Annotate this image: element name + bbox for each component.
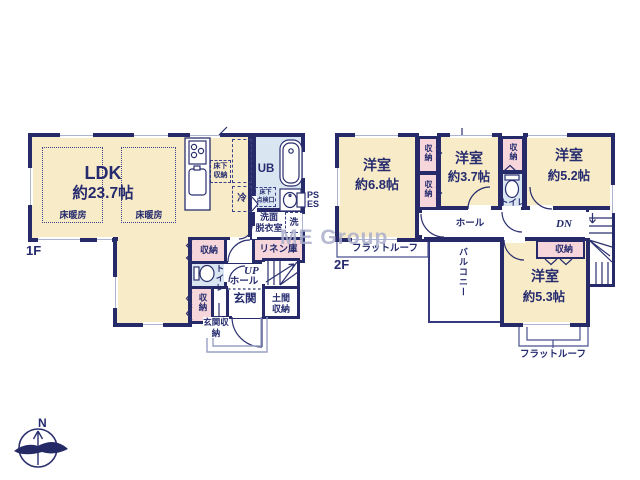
storage-side-label: 収納 (197, 293, 209, 312)
kitchen-counter-icon (185, 138, 210, 210)
fridge-label: 冷 (234, 193, 250, 205)
underfloor-storage-label: 床下収納 (211, 163, 230, 181)
dn-label: DN (556, 218, 572, 232)
hall-label-2f: ホール (446, 218, 494, 230)
floorplan-image: LDK 約23.7帖 床暖房 床暖房 床下収納 冷 UB 床下 点検口 PS E… (0, 0, 640, 480)
watermark-text: ME Group (280, 226, 388, 250)
ldk-size: 約23.7帖 (48, 184, 158, 203)
bedroom-5-3-size: 約5.3帖 (506, 290, 582, 306)
bedroom-6-8-size: 約6.8帖 (339, 177, 415, 193)
bathtub-icon (280, 140, 302, 186)
closet-b-label: 収納 (423, 180, 434, 198)
entrance-label: 玄関 (229, 292, 261, 306)
ldk-name: LDK (58, 162, 148, 185)
hall-label-1f: ホール (226, 276, 262, 288)
pipe-space-box (297, 193, 305, 207)
toilet-label-1f: トイレ (214, 264, 226, 293)
balcony-label: バルコニー (457, 247, 470, 297)
inspection-hatch-label: 床下 点検口 (256, 190, 275, 205)
floor-heating-label-left: 床暖房 (45, 210, 101, 221)
bedroom-5-3-name: 洋室 (516, 268, 574, 286)
stairs-down-icon (589, 213, 612, 284)
bedroom-6-8-name: 洋室 (348, 157, 406, 175)
closet-door-icons-1f (187, 240, 193, 320)
toilet-label-2f: トイレ (500, 197, 525, 208)
entrance-storage-label: 玄関収納 (203, 317, 229, 338)
floor-label-1f: 1F (26, 243, 41, 259)
unit-bath-label: UB (255, 162, 277, 176)
bedroom-3-7-name: 洋室 (443, 150, 495, 168)
flat-roof-bottom-label: フラットルーフ (516, 349, 590, 361)
toilet-icon-1f (194, 266, 214, 282)
storage-center-label: 収納 (193, 245, 225, 256)
toilet-icon-2f (505, 175, 519, 198)
es-label: ES (307, 199, 319, 210)
closet-c-label: 収納 (508, 143, 519, 161)
floor-heating-label-right: 床暖房 (124, 210, 174, 221)
bedroom-3-7-size: 約3.7帖 (436, 170, 502, 186)
closet-d-label: 収納 (548, 244, 580, 255)
bedroom-5-2-size: 約5.2帖 (532, 169, 606, 185)
wall-tick-marks (219, 127, 462, 135)
compass-north-label: N (38, 416, 47, 431)
doma-storage-label: 土間収納 (268, 293, 294, 316)
stairs-up-icon (266, 261, 298, 285)
floor-label-2f: 2F (334, 257, 349, 273)
bedroom-5-2-name: 洋室 (541, 147, 597, 165)
closet-a-label: 収納 (423, 144, 434, 162)
